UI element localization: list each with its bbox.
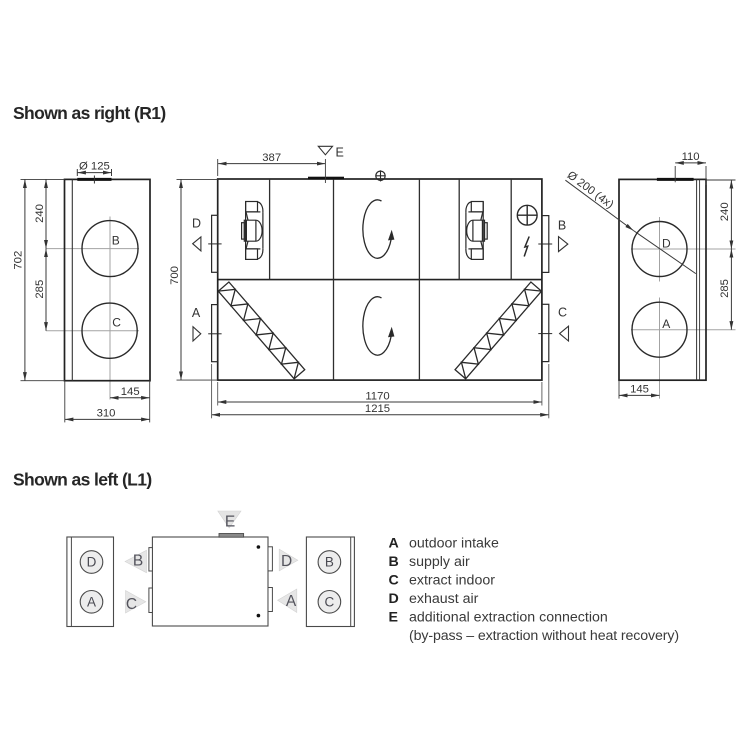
svg-text:Shown as right (R1): Shown as right (R1) <box>13 103 166 123</box>
svg-text:A: A <box>389 536 399 552</box>
svg-text:exhaust air: exhaust air <box>409 591 479 607</box>
svg-text:A: A <box>192 306 201 320</box>
svg-text:E: E <box>225 513 235 530</box>
svg-text:B: B <box>133 552 143 569</box>
svg-text:1170: 1170 <box>365 390 389 402</box>
svg-text:C: C <box>126 596 137 613</box>
svg-text:D: D <box>389 591 399 607</box>
svg-text:310: 310 <box>97 407 116 419</box>
svg-text:A: A <box>286 593 297 610</box>
svg-text:outdoor intake: outdoor intake <box>409 536 499 552</box>
svg-text:E: E <box>389 610 398 626</box>
svg-text:(by-pass – extraction without: (by-pass – extraction without heat recov… <box>409 628 679 644</box>
svg-text:additional extraction connecti: additional extraction connection <box>409 610 608 626</box>
svg-text:Shown as left (L1): Shown as left (L1) <box>13 469 152 489</box>
svg-text:1215: 1215 <box>365 403 390 415</box>
svg-text:supply air: supply air <box>409 554 470 570</box>
svg-text:C: C <box>558 306 567 320</box>
svg-text:387: 387 <box>262 152 281 164</box>
svg-text:D: D <box>87 555 97 570</box>
svg-text:C: C <box>389 572 399 588</box>
svg-text:E: E <box>336 146 344 160</box>
svg-text:B: B <box>558 219 566 233</box>
svg-text:285: 285 <box>34 280 46 299</box>
svg-text:C: C <box>325 594 335 609</box>
svg-text:extract indoor: extract indoor <box>409 572 495 588</box>
svg-text:110: 110 <box>682 151 700 163</box>
svg-text:D: D <box>281 553 292 570</box>
svg-text:145: 145 <box>630 383 649 395</box>
svg-text:A: A <box>662 317 670 331</box>
svg-text:D: D <box>662 236 671 250</box>
svg-text:Ø 125: Ø 125 <box>79 161 110 173</box>
svg-text:145: 145 <box>121 386 140 398</box>
svg-text:A: A <box>87 594 96 609</box>
svg-text:C: C <box>112 316 121 330</box>
svg-text:702: 702 <box>13 251 25 270</box>
svg-text:B: B <box>112 233 120 247</box>
svg-text:B: B <box>325 555 334 570</box>
svg-text:Ø 200 (4x): Ø 200 (4x) <box>565 169 616 211</box>
svg-text:D: D <box>192 217 201 231</box>
svg-text:B: B <box>389 554 399 570</box>
svg-text:285: 285 <box>719 279 731 298</box>
svg-text:240: 240 <box>34 204 46 223</box>
svg-text:700: 700 <box>169 266 181 285</box>
svg-text:240: 240 <box>719 202 731 221</box>
